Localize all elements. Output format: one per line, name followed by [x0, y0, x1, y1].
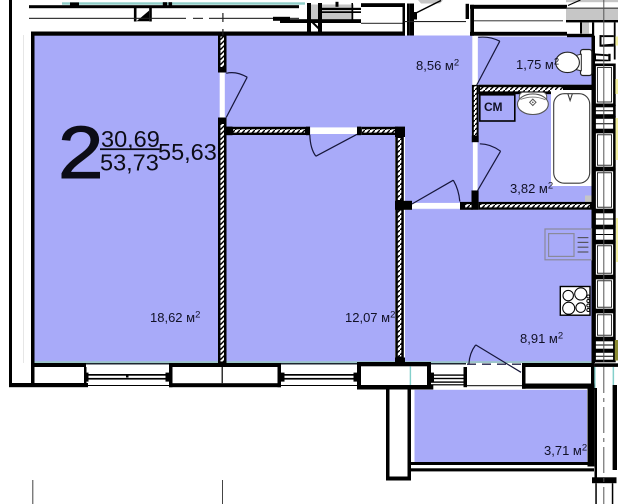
- svg-text:8,91 м2: 8,91 м2: [520, 331, 563, 347]
- svg-text:55,63: 55,63: [158, 139, 217, 165]
- svg-text:18,62 м2: 18,62 м2: [150, 310, 200, 326]
- svg-text:8,56 м2: 8,56 м2: [416, 58, 459, 74]
- svg-text:53,73: 53,73: [100, 150, 159, 176]
- svg-text:3,82 м2: 3,82 м2: [510, 181, 553, 197]
- svg-text:30,69: 30,69: [101, 126, 160, 152]
- svg-text:12,07 м2: 12,07 м2: [345, 310, 395, 326]
- svg-text:2: 2: [58, 111, 104, 194]
- svg-text:3,71 м2: 3,71 м2: [544, 443, 587, 459]
- svg-text:СМ: СМ: [484, 100, 503, 114]
- svg-text:1,75 м2: 1,75 м2: [516, 57, 559, 73]
